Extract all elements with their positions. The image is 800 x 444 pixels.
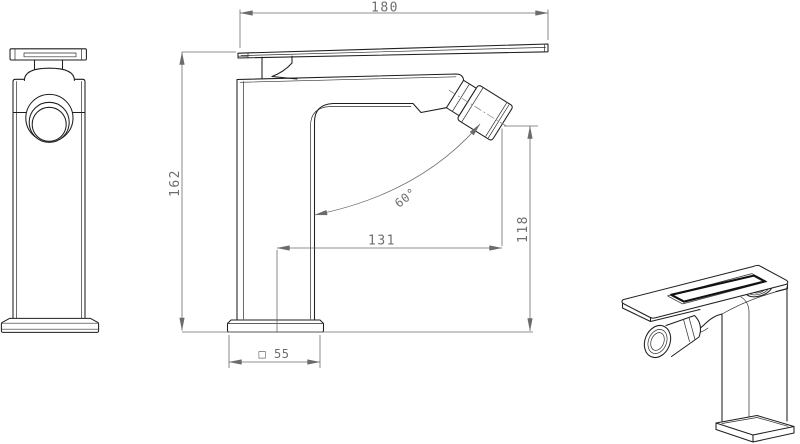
spout-head-side <box>438 73 519 145</box>
base-plinth-front <box>1 318 98 332</box>
spout-head-3d <box>640 316 701 362</box>
dim-spout-angle-label: 60° <box>392 185 419 210</box>
technical-drawing: 180 162 131 118 60° □ 55 <box>0 0 800 444</box>
dimension-lever-length: 180 <box>240 1 548 49</box>
dim-lever-length-label: 180 <box>371 1 399 16</box>
dim-base-square-label: □ 55 <box>259 347 290 361</box>
dimension-overall-height: 162 <box>168 52 236 331</box>
cartridge-dome <box>24 68 74 80</box>
handle-stem-side <box>262 56 297 79</box>
base-plinth-side <box>228 320 324 332</box>
lever-plate-3d <box>622 265 788 321</box>
dimension-base-square: □ 55 <box>229 335 320 368</box>
drawing-canvas: 180 162 131 118 60° □ 55 <box>0 0 800 444</box>
column-3d <box>722 287 787 421</box>
lever-handle-side <box>238 44 548 58</box>
dim-outlet-height-label: 118 <box>516 215 531 243</box>
front-view <box>1 49 98 333</box>
base-plinth-3d <box>716 416 794 443</box>
side-view <box>228 44 549 332</box>
dim-spout-reach-label: 131 <box>368 234 396 249</box>
perspective-view <box>622 265 794 442</box>
dim-overall-height-label: 162 <box>168 169 183 197</box>
lever-handle-front <box>10 49 86 60</box>
dimension-outlet-height: 118 <box>504 126 538 331</box>
spout-aerator-front <box>26 94 73 142</box>
faucet-body-side <box>237 74 464 320</box>
dimension-spout-angle: 60° <box>315 124 481 215</box>
